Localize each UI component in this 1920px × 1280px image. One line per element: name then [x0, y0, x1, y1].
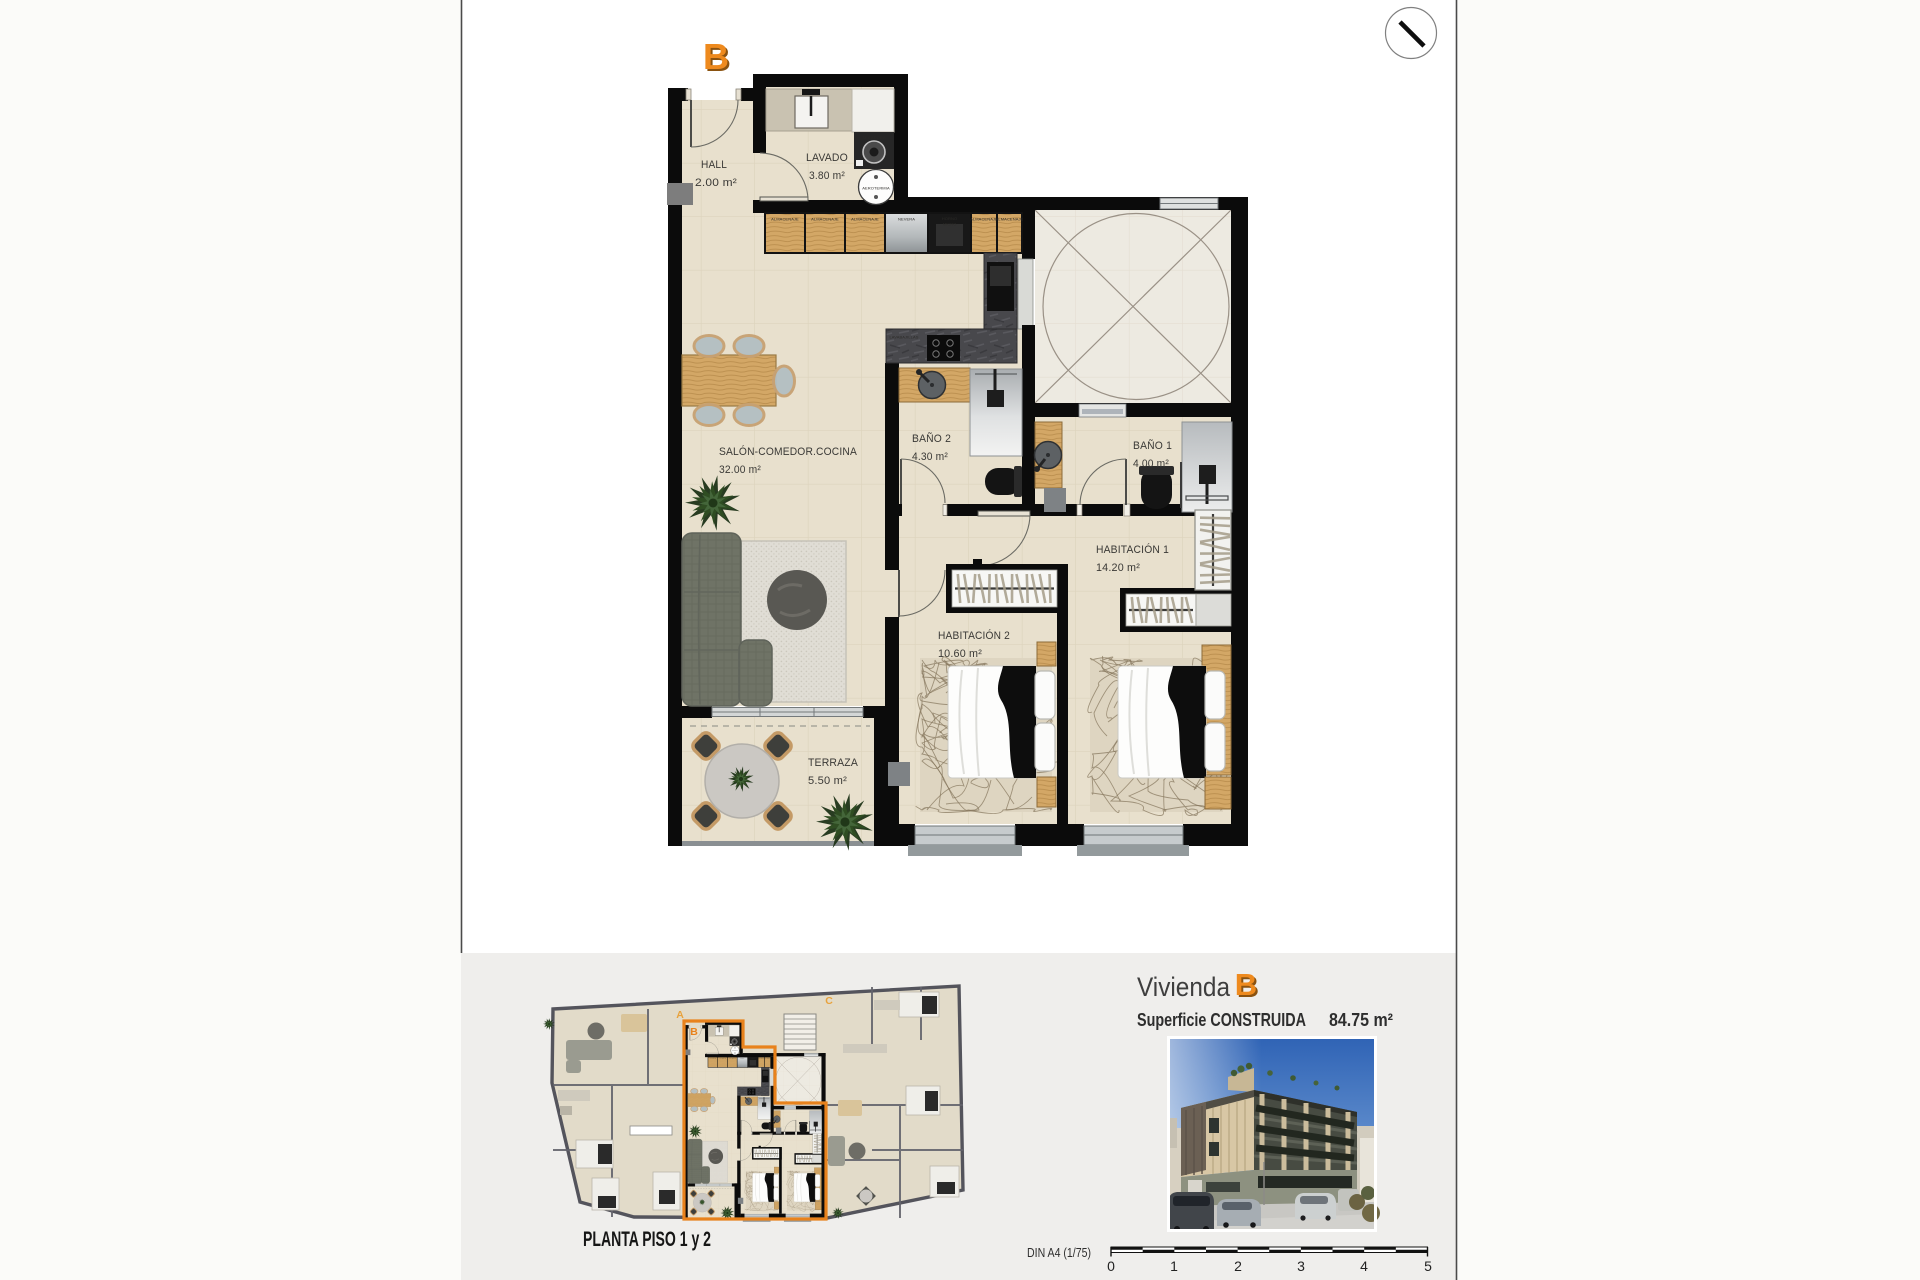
- svg-text:10.60 m²: 10.60 m²: [938, 648, 982, 660]
- svg-text:C: C: [825, 995, 833, 1007]
- svg-text:NEVERA: NEVERA: [898, 217, 915, 222]
- svg-text:14.20 m²: 14.20 m²: [1096, 562, 1140, 574]
- svg-text:SECADORA: SECADORA: [862, 135, 885, 140]
- svg-text:84.75 m²: 84.75 m²: [1329, 1010, 1393, 1030]
- svg-text:5: 5: [1424, 1258, 1432, 1274]
- svg-text:ALMACENAJE: ALMACENAJE: [970, 217, 998, 222]
- svg-text:2: 2: [1234, 1258, 1242, 1274]
- svg-text:ALMACENAJE: ALMACENAJE: [996, 217, 1024, 222]
- svg-text:3: 3: [1297, 1258, 1305, 1274]
- svg-text:DIN A4 (1/75): DIN A4 (1/75): [1027, 1245, 1091, 1260]
- svg-text:32.00 m²: 32.00 m²: [719, 464, 761, 476]
- svg-text:ALMACENAJE: ALMACENAJE: [771, 217, 799, 222]
- svg-text:BAÑO 1: BAÑO 1: [1133, 439, 1172, 452]
- svg-text:4.00 m²: 4.00 m²: [1133, 458, 1169, 470]
- svg-text:PLANTA PISO 1 y 2: PLANTA PISO 1 y 2: [583, 1228, 711, 1251]
- svg-text:AEROTERMIA: AEROTERMIA: [862, 186, 890, 191]
- svg-text:2.00 m²: 2.00 m²: [695, 177, 737, 189]
- svg-text:0: 0: [1107, 1258, 1115, 1274]
- svg-text:ALMACENAJE: ALMACENAJE: [811, 217, 839, 222]
- svg-text:B: B: [690, 1026, 698, 1038]
- svg-text:3.80 m²: 3.80 m²: [809, 170, 845, 182]
- svg-text:HABITACIÓN 2: HABITACIÓN 2: [938, 629, 1010, 642]
- svg-text:B: B: [1235, 967, 1257, 1002]
- svg-text:LAVADO: LAVADO: [806, 152, 848, 164]
- svg-text:B: B: [703, 36, 729, 77]
- svg-text:ALMACENAJE: ALMACENAJE: [851, 217, 879, 222]
- svg-text:SALÓN-COMEDOR.COCINA: SALÓN-COMEDOR.COCINA: [719, 445, 857, 458]
- svg-text:BAÑO 2: BAÑO 2: [912, 432, 951, 445]
- svg-text:TERRAZA: TERRAZA: [808, 757, 858, 769]
- svg-text:1: 1: [1170, 1258, 1178, 1274]
- svg-text:Vivienda: Vivienda: [1137, 972, 1231, 1002]
- svg-text:LAVABAJILLAS: LAVABAJILLAS: [889, 335, 918, 340]
- svg-text:Superficie CONSTRUIDA: Superficie CONSTRUIDA: [1137, 1010, 1306, 1030]
- svg-text:4.30 m²: 4.30 m²: [912, 451, 948, 463]
- svg-text:4: 4: [1360, 1258, 1368, 1274]
- svg-text:HORNO: HORNO: [942, 216, 957, 221]
- svg-text:HABITACIÓN 1: HABITACIÓN 1: [1096, 543, 1169, 556]
- svg-text:A: A: [676, 1009, 684, 1021]
- svg-text:5.50 m²: 5.50 m²: [808, 775, 847, 787]
- svg-text:MICRO: MICRO: [943, 222, 957, 227]
- svg-text:HALL: HALL: [701, 159, 727, 171]
